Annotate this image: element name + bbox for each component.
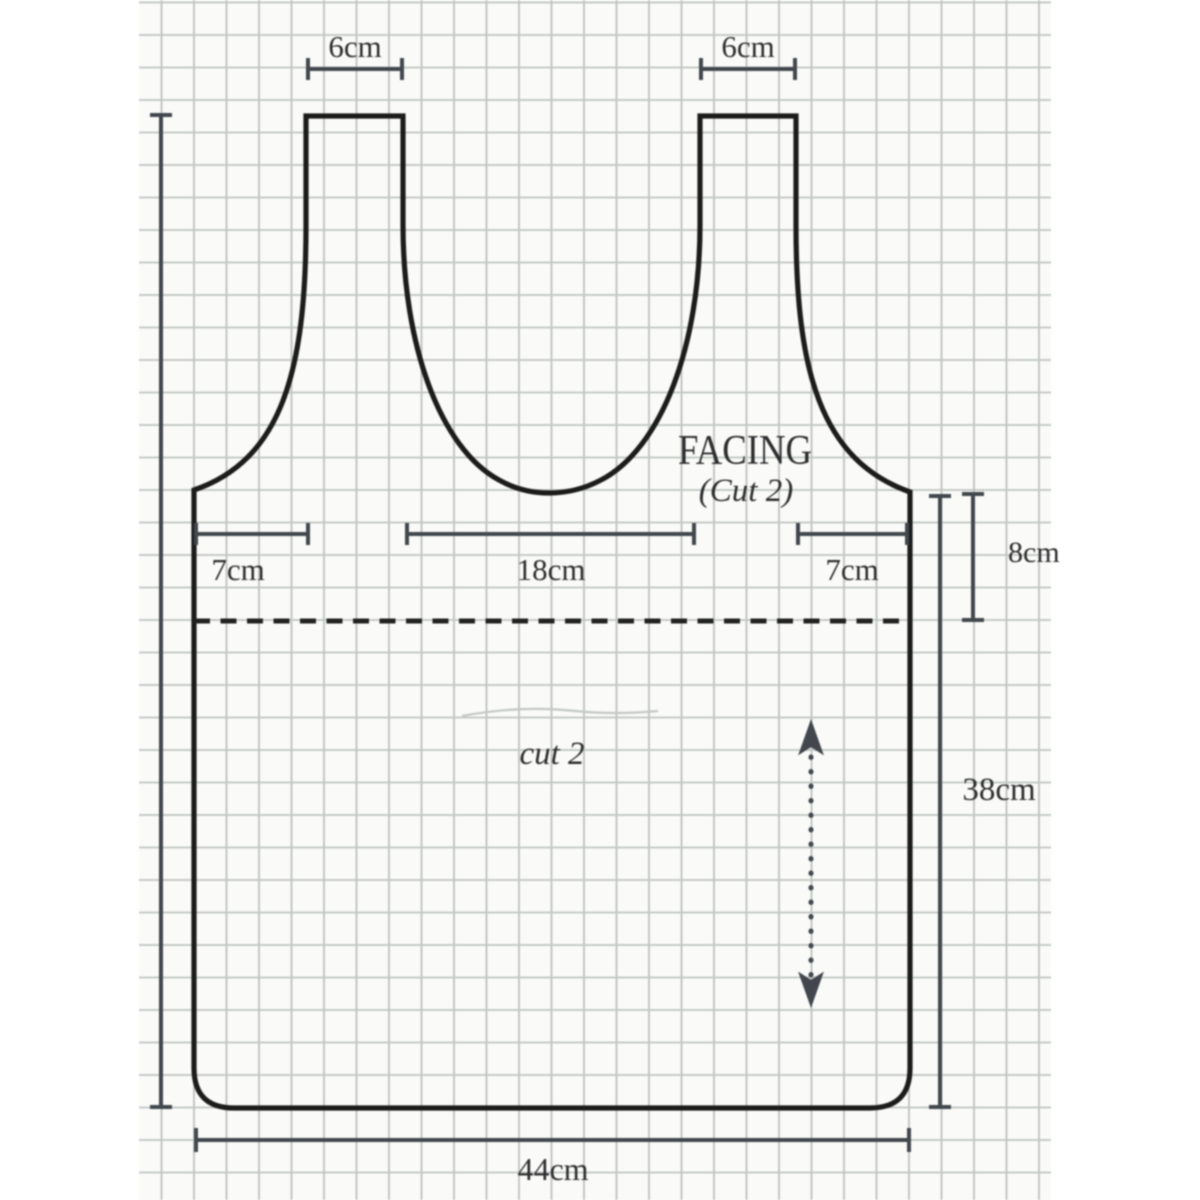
svg-text:cut 2: cut 2 xyxy=(519,736,584,772)
svg-text:7cm: 7cm xyxy=(211,552,264,587)
svg-text:18cm: 18cm xyxy=(517,552,586,587)
svg-text:(Cut 2): (Cut 2) xyxy=(699,473,793,509)
svg-text:38cm: 38cm xyxy=(962,772,1036,808)
svg-text:FACING: FACING xyxy=(678,428,812,474)
svg-text:6cm: 6cm xyxy=(721,29,774,64)
svg-text:6cm: 6cm xyxy=(328,29,381,64)
svg-text:8cm: 8cm xyxy=(1008,536,1060,569)
svg-text:7cm: 7cm xyxy=(825,552,878,587)
svg-text:44cm: 44cm xyxy=(517,1151,588,1187)
